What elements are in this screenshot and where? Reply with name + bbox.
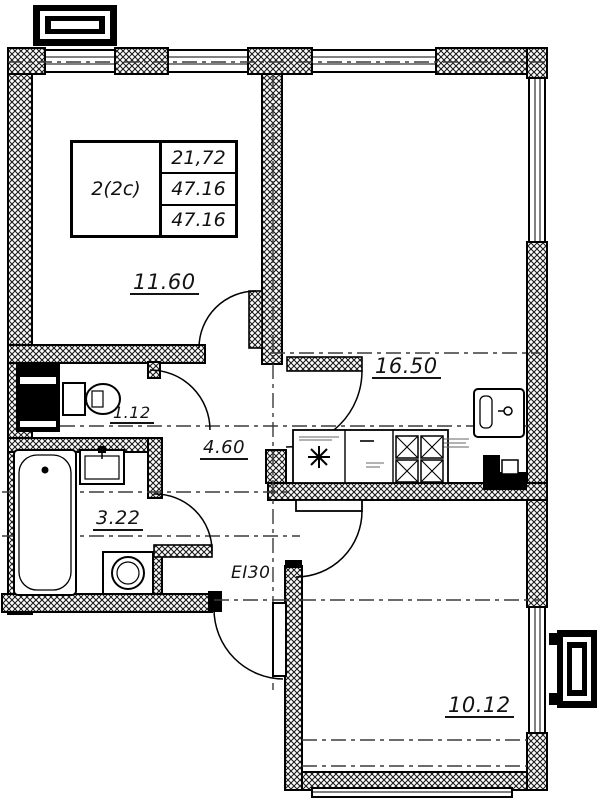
stamp-table: 2(2c) 21,72 47.16 47.16 — [70, 140, 238, 238]
wall-right-mid — [527, 500, 547, 607]
fire-rating-value: EI30 — [231, 563, 270, 583]
door-bathroom — [154, 494, 212, 557]
toilet-detail — [92, 391, 103, 407]
vent-shaft-slot — [20, 421, 56, 427]
wall-bath-right-upper — [148, 438, 162, 498]
room-area-value: 1.12 — [110, 405, 154, 424]
door-entrance-ei30 — [214, 603, 286, 679]
room-label-wc: 1.12 — [110, 403, 154, 424]
wall-right-corner — [527, 48, 547, 78]
wc-fixtures — [16, 362, 120, 432]
toilet-tank — [63, 383, 85, 415]
window-kitchen — [312, 50, 436, 72]
door-leaf — [296, 500, 362, 511]
basket-tab — [549, 633, 557, 645]
stamp-value-total-area: 47.16 — [162, 172, 235, 203]
room-area-value: 16.50 — [372, 355, 441, 379]
room-label-room2: 10.12 — [445, 693, 514, 718]
sink-inner — [85, 456, 119, 479]
window-frame — [529, 607, 545, 733]
apartment-type-label: 2(2c) — [73, 143, 162, 235]
window-right-room2 — [529, 607, 545, 733]
window-frame — [312, 50, 436, 72]
wall-mid-vertical — [262, 74, 282, 364]
wall-cap — [285, 560, 302, 568]
entrance-door-rating-label: EI30 — [231, 563, 270, 583]
kitchen-corner-duct — [483, 455, 527, 490]
window-right-kitchen — [529, 78, 545, 242]
stamp-values-column: 21,72 47.16 47.16 — [162, 143, 235, 235]
room-area-value: 4.60 — [200, 439, 248, 460]
door-leaf — [273, 603, 286, 676]
window-frame — [529, 78, 545, 242]
stamp-value-total-area-2: 47.16 — [162, 204, 235, 235]
fridge-handle — [504, 407, 512, 415]
window-bedroom-2 — [168, 50, 248, 72]
wall-right-pier-low — [527, 733, 547, 790]
door-swing-arc — [154, 494, 212, 551]
vent-shaft-slot — [20, 377, 56, 384]
wall-right-upper — [527, 242, 547, 500]
room-area-value: 10.12 — [445, 694, 514, 718]
basket-slot — [51, 21, 99, 29]
basket-slot — [572, 648, 582, 690]
room-area-value: 3.22 — [93, 509, 143, 531]
bathtub-drain — [42, 467, 49, 474]
room-label-bedroom: 11.60 — [130, 270, 199, 295]
basket-tab — [549, 693, 557, 705]
ac-basket-right-icon — [549, 630, 597, 708]
bath-sink-icon — [80, 446, 124, 484]
room-label-hallway: 4.60 — [200, 437, 248, 460]
fridge-shelf — [480, 396, 492, 428]
bathtub-icon — [14, 450, 76, 595]
bathtub-inner — [19, 455, 71, 590]
washer-drum — [117, 562, 139, 584]
floorplan-drawing — [0, 0, 600, 798]
kitchen-sink-icon — [308, 446, 330, 468]
door-swing-arc — [199, 291, 256, 348]
wall-hall-kitchen-pier — [266, 450, 286, 483]
stamp-value-living-area: 21,72 — [162, 143, 235, 172]
wall-top-pier-b — [115, 48, 168, 74]
ac-basket-top-icon — [33, 5, 117, 46]
wall-bath-bottom — [2, 594, 212, 612]
door-leaf — [249, 291, 262, 348]
washing-machine-icon — [103, 552, 153, 594]
star-center — [317, 455, 322, 460]
sink-faucet — [98, 446, 106, 453]
window-frame — [168, 50, 248, 72]
wall-bedroom-bottom — [8, 345, 205, 363]
room-label-kitchen-living: 16.50 — [372, 354, 441, 379]
door-swing-arc — [296, 511, 362, 577]
door-room2 — [296, 500, 362, 577]
wall-cap — [208, 591, 222, 612]
fridge-icon — [474, 389, 524, 437]
kitchen-fixtures — [293, 389, 527, 490]
door-leaf — [287, 357, 362, 371]
duct-notch — [502, 460, 518, 474]
room-area-value: 11.60 — [130, 271, 199, 295]
wall-top-pier-c — [248, 48, 312, 74]
wall-top-pier-a — [8, 48, 45, 74]
room-label-bathroom: 3.22 — [93, 507, 143, 531]
floorplan-canvas: 2(2c) 21,72 47.16 47.16 11.60 16.50 1.12… — [0, 0, 600, 798]
window-frame — [45, 50, 115, 72]
window-bedroom-1 — [45, 50, 115, 72]
door-bedroom — [199, 291, 262, 348]
door-leaf — [154, 545, 212, 557]
window-bottom-room2 — [312, 788, 512, 797]
